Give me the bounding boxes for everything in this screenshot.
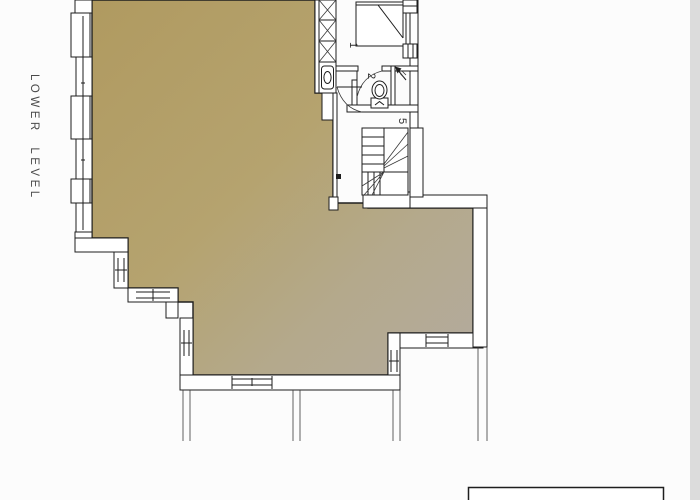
bed-icon [356,0,417,58]
washbasin-icon [319,62,336,93]
bedroom-left-wall [315,0,319,93]
stair-right-wall [410,128,423,197]
floorplan-drawing: 1 [0,0,700,500]
room-label-bedroom: 1 [347,42,359,48]
closet-icon [319,0,336,62]
toilet-icon [371,81,388,108]
screen-edge-strip [690,0,700,500]
stairs-icon [362,128,408,195]
room-label-wc: 2 [365,73,377,79]
floorplan-screenshot: LOWER LEVEL [0,0,700,500]
shaft-divider-wall [391,66,395,110]
scale-box-partial [469,488,664,500]
room-label-hall: 5 [396,118,408,124]
bottom-wall [180,375,400,390]
left-wall-windows [71,0,92,240]
column [336,174,341,179]
